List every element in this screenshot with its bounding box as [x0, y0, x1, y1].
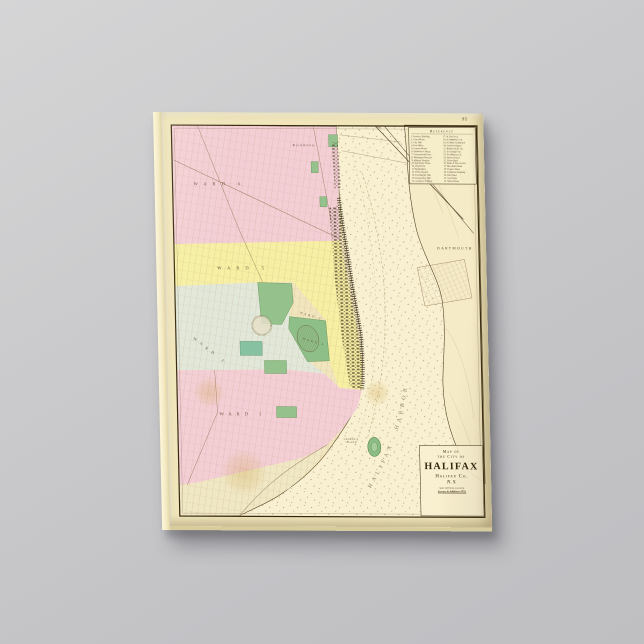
- reference-entry: 32. Water Works: [444, 180, 474, 183]
- title-cartouche: Map of the City of HALIFAX Halifax Co. N…: [419, 445, 484, 516]
- richmond-label: Richmond: [280, 144, 328, 148]
- title-edition-note: Surveys & Additions 1878.: [421, 490, 484, 493]
- dartmouth-label: DARTMOUTH: [431, 246, 479, 250]
- ward-6-label: WARD 6: [194, 181, 247, 186]
- title-scale-note: Scale 1600 Feet to an Inch.: [421, 487, 484, 490]
- ward-5-label: WARD 5: [217, 265, 270, 270]
- page-number: 95: [462, 116, 468, 121]
- georges-island-label: GEORGE'S ISLAND: [335, 438, 367, 444]
- reference-entry: 16. Academy of Music: [412, 180, 442, 183]
- title-halifax: HALIFAX: [420, 460, 483, 472]
- scale-note: 1 Mile: [375, 126, 381, 129]
- reference-title: Reference: [411, 129, 473, 134]
- reference-left-column: 1. Province Building2. Court House3. Cit…: [411, 135, 442, 183]
- reference-right-column: 17. St. Paul's Ch.18. St. Matthew's Ch.1…: [443, 135, 474, 183]
- georges-island: [368, 437, 381, 456]
- ward-1-label: WARD 1: [220, 411, 267, 416]
- studio-background: HALIFAX HARBOR 95 Reference: [0, 0, 644, 644]
- title-county: Halifax Co.: [420, 473, 483, 479]
- canvas-print: HALIFAX HARBOR 95 Reference: [153, 112, 492, 531]
- canvas-front: HALIFAX HARBOR 95 Reference: [161, 112, 492, 527]
- title-province: N. S.: [421, 479, 484, 485]
- title-line-2: the City of: [420, 454, 483, 459]
- map-print: HALIFAX HARBOR 95 Reference: [161, 112, 492, 527]
- reference-legend: Reference 1. Province Building2. Court H…: [408, 127, 476, 184]
